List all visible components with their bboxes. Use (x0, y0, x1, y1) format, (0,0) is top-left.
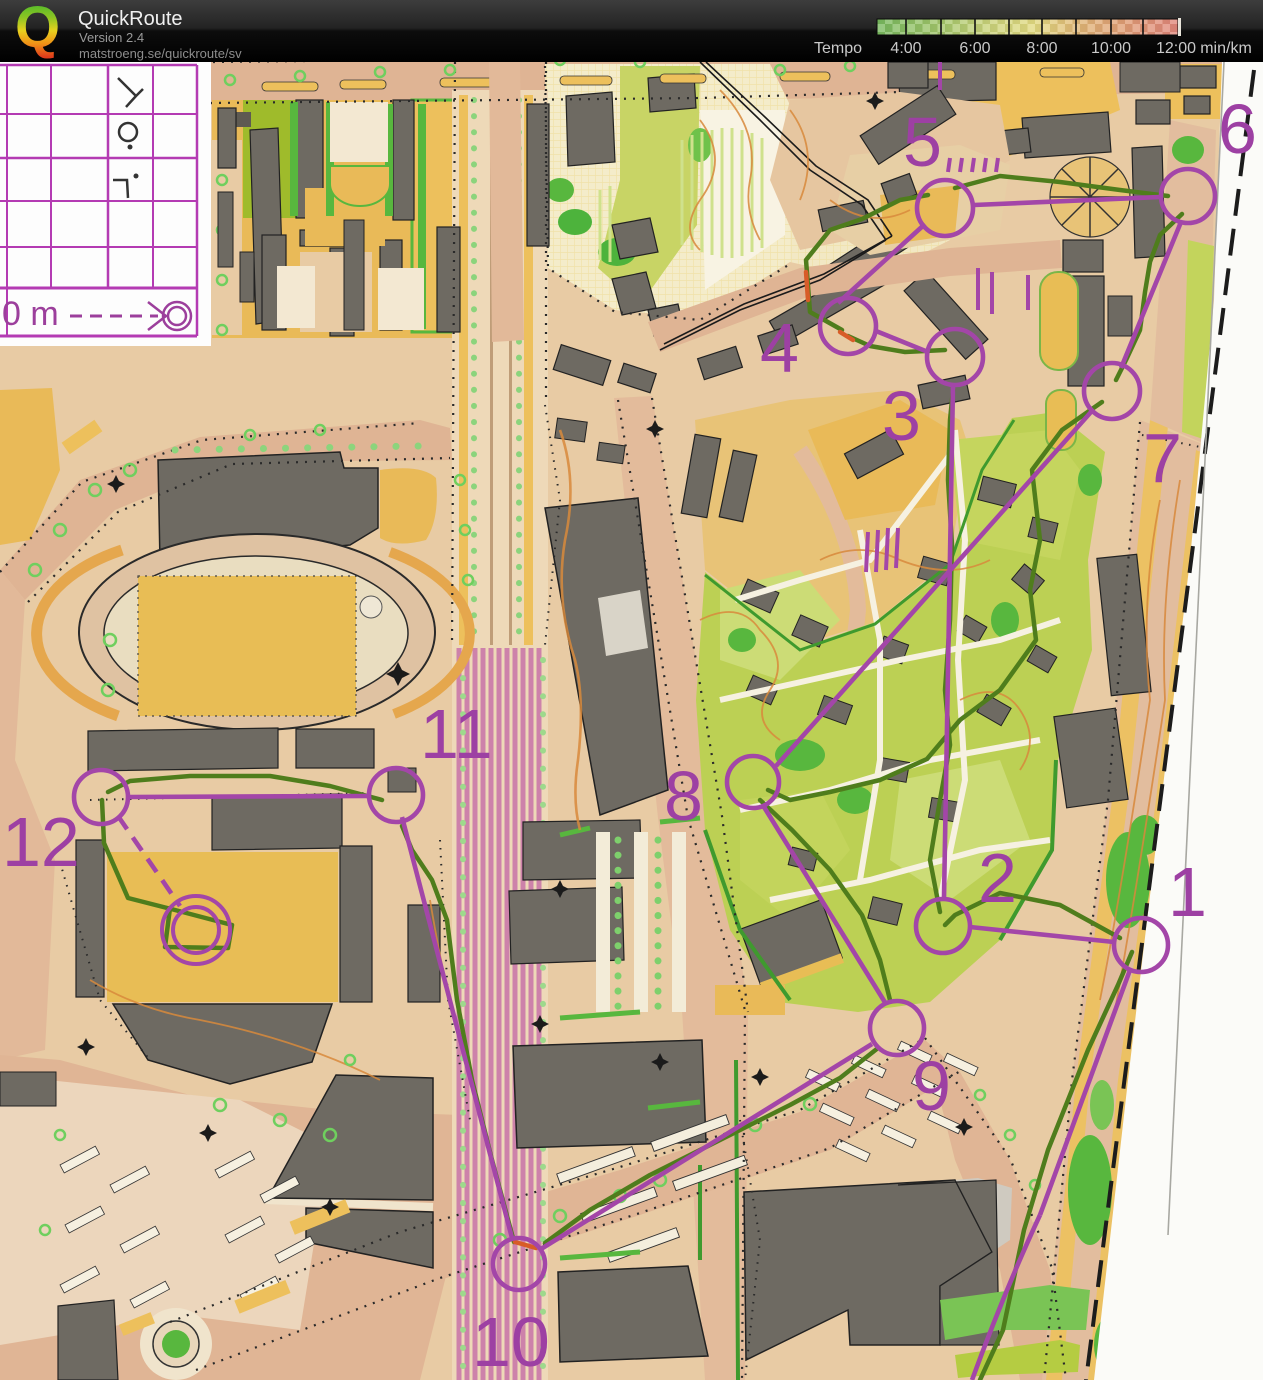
svg-text:4:00: 4:00 (890, 40, 921, 57)
svg-text:8: 8 (664, 757, 703, 835)
svg-text:7: 7 (1143, 419, 1182, 497)
svg-text:1: 1 (1168, 853, 1207, 931)
svg-text:5: 5 (903, 103, 942, 181)
svg-text:matstroeng.se/quickroute/sv: matstroeng.se/quickroute/sv (79, 46, 242, 61)
svg-text:12: 12 (2, 803, 80, 881)
svg-text:12:00: 12:00 (1156, 40, 1196, 57)
svg-text:10: 10 (472, 1303, 550, 1380)
svg-text:Q: Q (15, 0, 60, 60)
svg-text:2: 2 (978, 839, 1017, 917)
svg-text:QuickRoute: QuickRoute (78, 8, 183, 30)
svg-text:3: 3 (882, 377, 921, 455)
svg-text:Tempo: Tempo (814, 40, 862, 57)
svg-text:11: 11 (420, 695, 493, 773)
svg-text:6: 6 (1218, 90, 1257, 168)
svg-text:4: 4 (760, 309, 799, 387)
svg-text:0 m: 0 m (2, 295, 59, 333)
svg-text:Version 2.4: Version 2.4 (79, 30, 144, 45)
svg-text:6:00: 6:00 (959, 40, 990, 57)
svg-text:10:00: 10:00 (1091, 40, 1131, 57)
svg-text:min/km: min/km (1200, 40, 1252, 57)
svg-text:9: 9 (912, 1047, 951, 1125)
svg-text:8:00: 8:00 (1026, 40, 1057, 57)
